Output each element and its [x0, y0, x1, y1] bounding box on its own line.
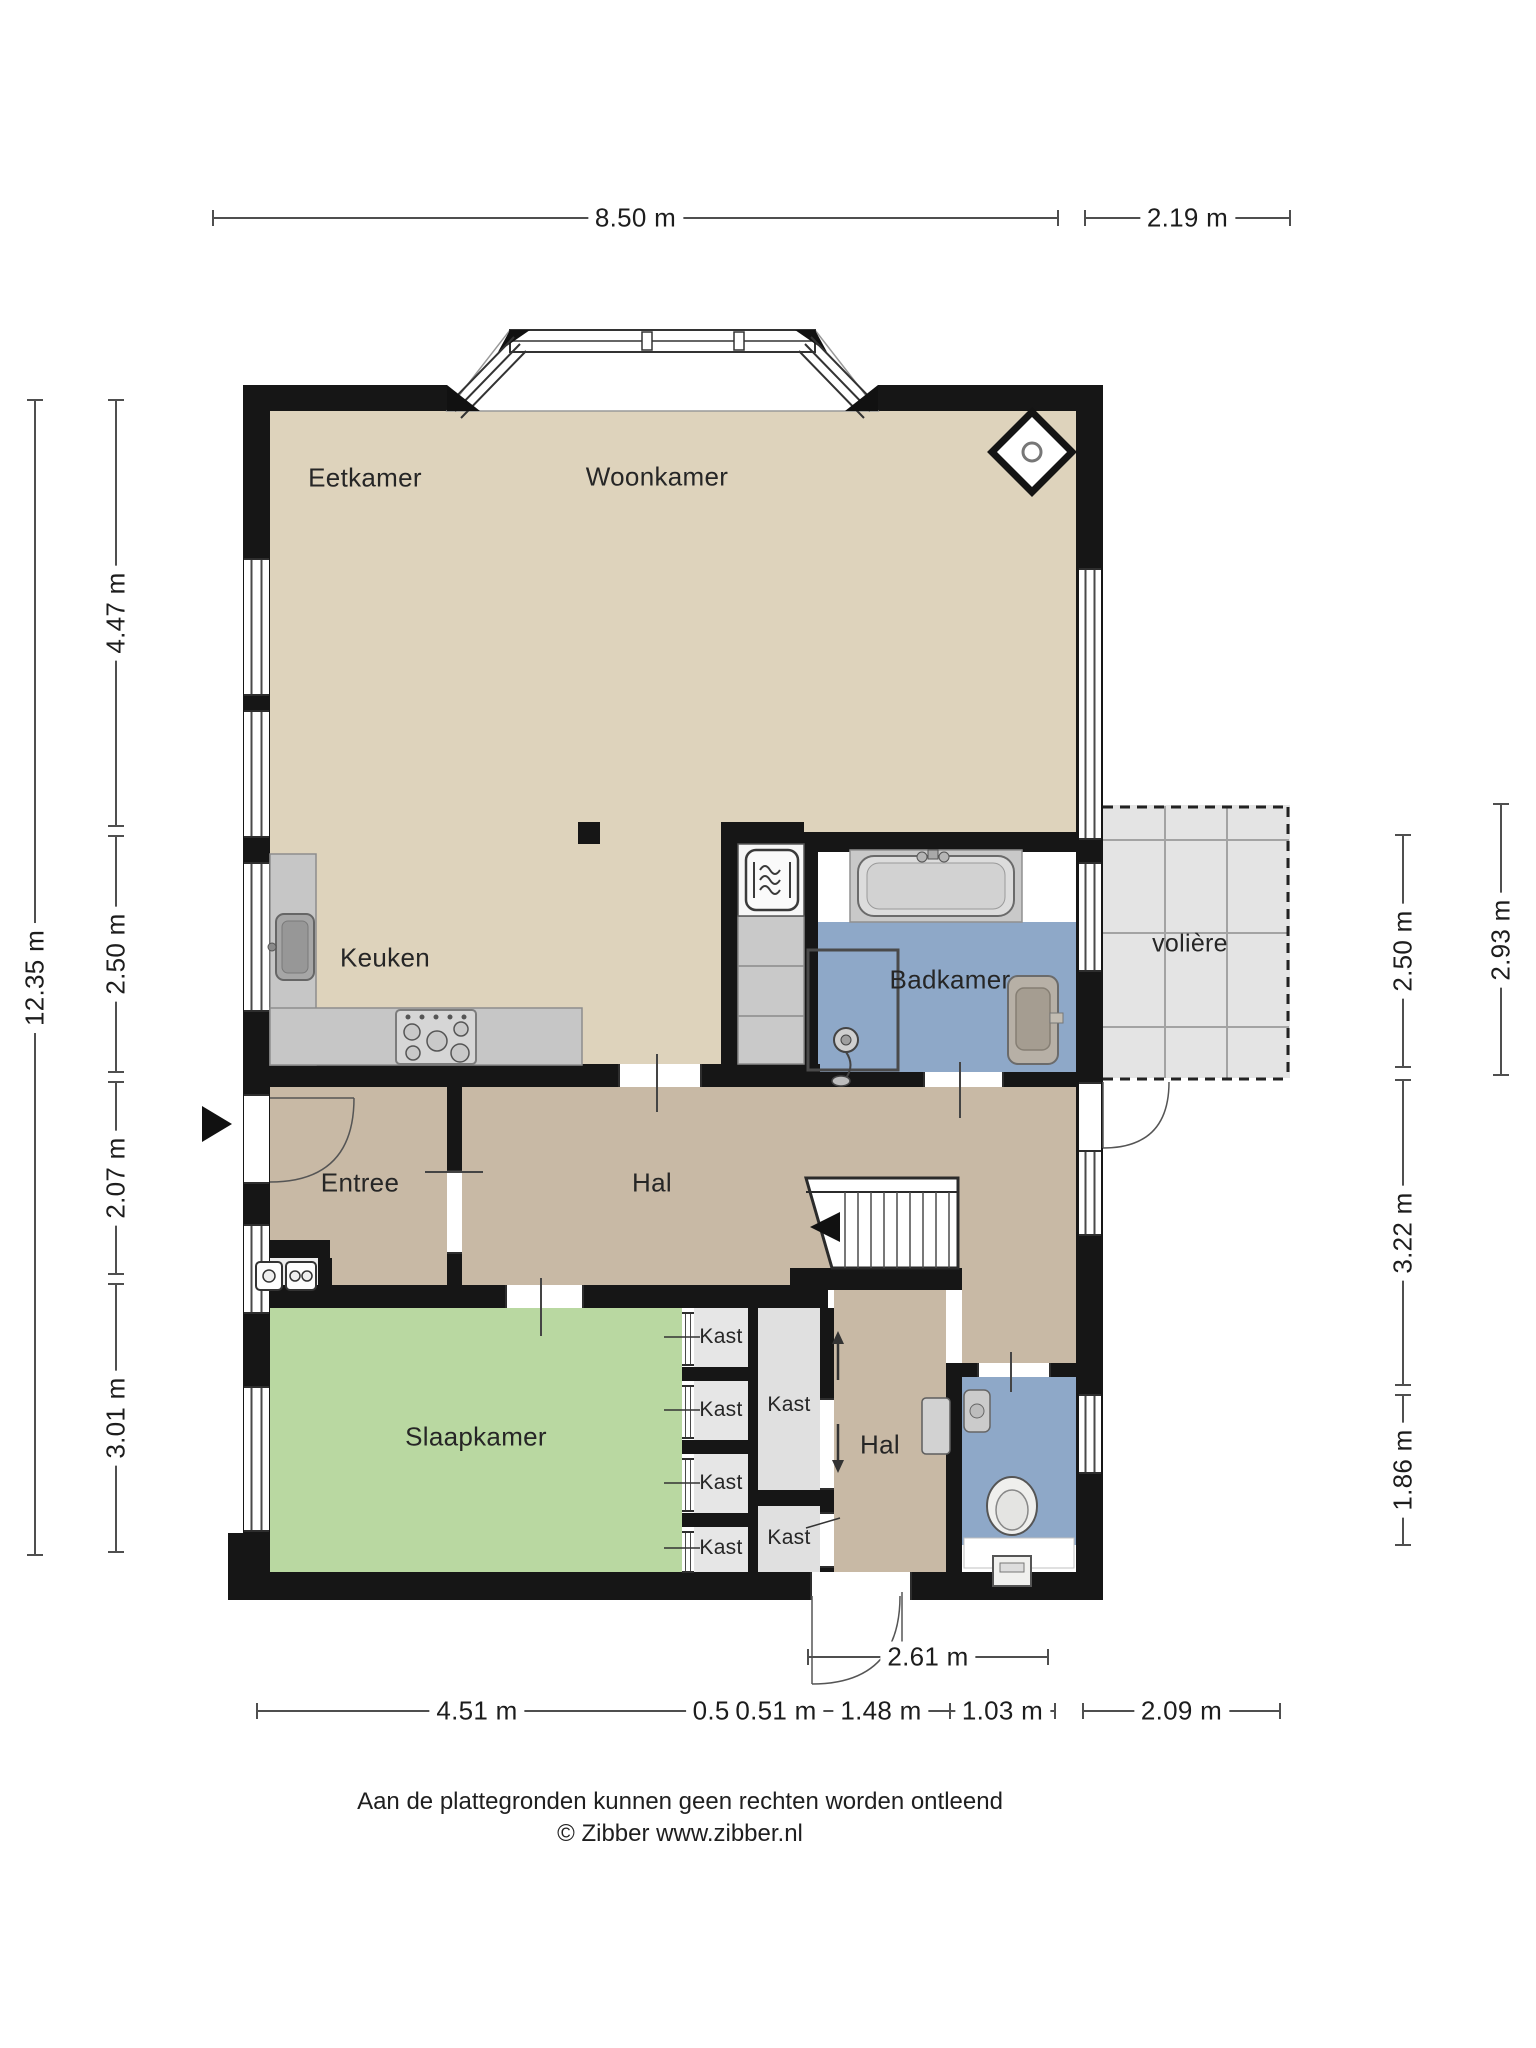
- footer-copyright: © Zibber www.zibber.nl: [557, 1820, 803, 1848]
- footer: Aan de plattegronden kunnen geen rechten…: [0, 0, 1536, 2048]
- footer-disclaimer: Aan de plattegronden kunnen geen rechten…: [357, 1788, 1003, 1816]
- floorplan-canvas: EetkamerWoonkamerKeukenBadkamervolièreEn…: [0, 0, 1536, 2048]
